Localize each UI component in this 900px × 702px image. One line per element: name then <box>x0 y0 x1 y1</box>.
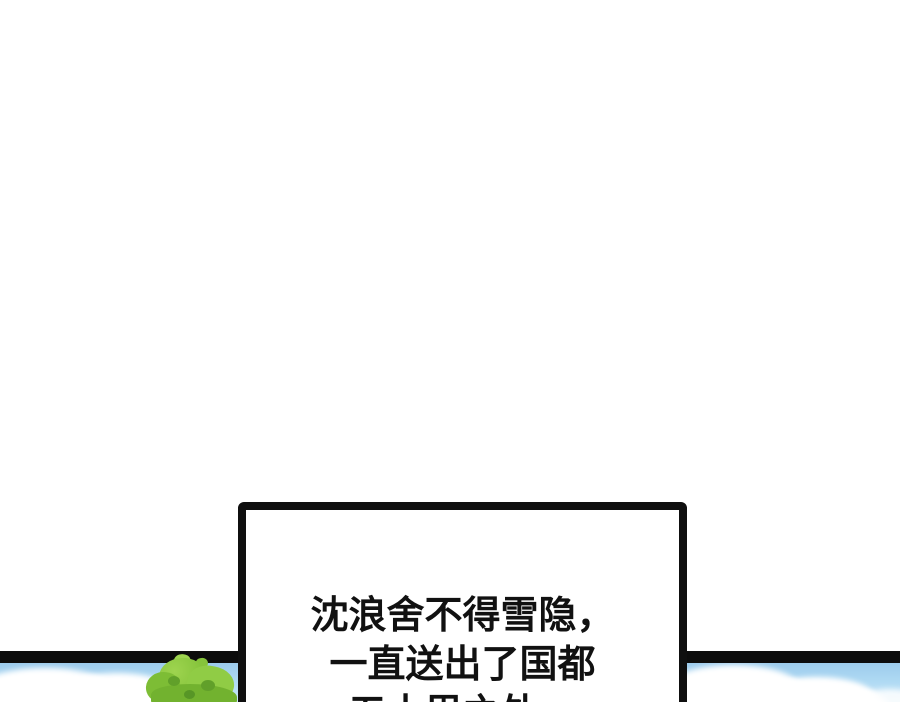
tree-leaf-shadow <box>168 676 180 686</box>
speech-line-1: 沈浪舍不得雪隐， <box>246 592 679 641</box>
speech-bubble: 沈浪舍不得雪隐， 一直送出了国都 五十里之外。 <box>238 502 687 702</box>
speech-line-3: 五十里之外。 <box>246 690 679 702</box>
speech-line-2: 一直送出了国都 <box>246 641 679 690</box>
comic-page: 沈浪舍不得雪隐， 一直送出了国都 五十里之外。 <box>0 0 900 702</box>
tree-leaf-shadow <box>201 680 215 691</box>
tree-foliage <box>146 646 242 702</box>
tree-leaf-shadow <box>184 690 195 699</box>
speech-text: 沈浪舍不得雪隐， 一直送出了国都 五十里之外。 <box>246 592 679 702</box>
